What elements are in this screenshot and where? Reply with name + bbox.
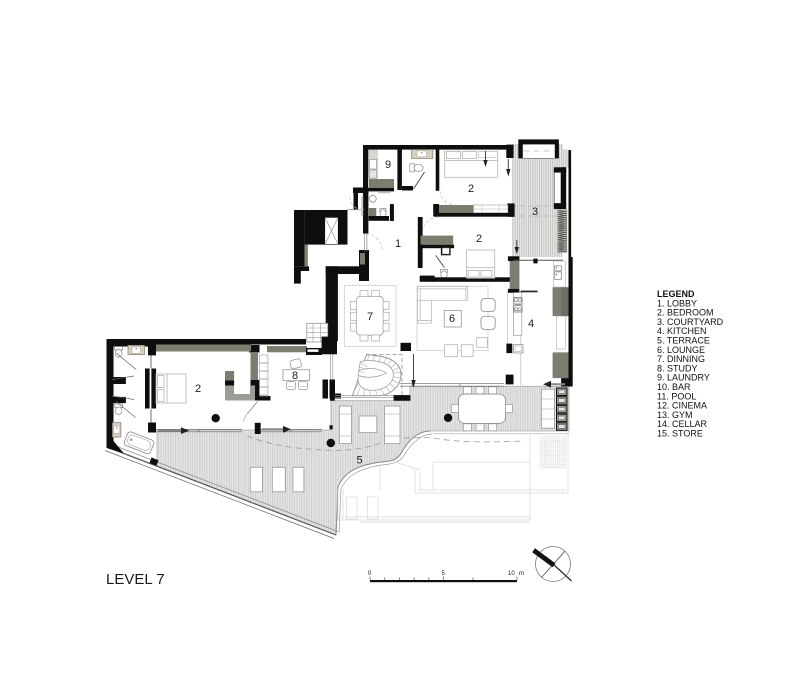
svg-text:2: 2 xyxy=(468,183,474,195)
svg-text:6: 6 xyxy=(449,313,455,325)
svg-text:8: 8 xyxy=(292,370,298,382)
svg-text:0: 0 xyxy=(368,571,372,577)
svg-text:m: m xyxy=(519,571,524,577)
svg-text:10: 10 xyxy=(508,571,515,577)
svg-text:5: 5 xyxy=(357,455,363,467)
svg-text:9: 9 xyxy=(385,159,391,171)
svg-text:LEVEL 7: LEVEL 7 xyxy=(106,571,165,588)
svg-text:1: 1 xyxy=(395,238,401,250)
svg-text:7: 7 xyxy=(367,311,373,323)
svg-text:4: 4 xyxy=(528,318,534,330)
svg-text:15. STORE: 15. STORE xyxy=(657,429,703,439)
svg-text:2: 2 xyxy=(476,233,482,245)
svg-text:5: 5 xyxy=(442,571,446,577)
svg-text:3: 3 xyxy=(532,206,538,218)
svg-text:2: 2 xyxy=(195,383,201,395)
